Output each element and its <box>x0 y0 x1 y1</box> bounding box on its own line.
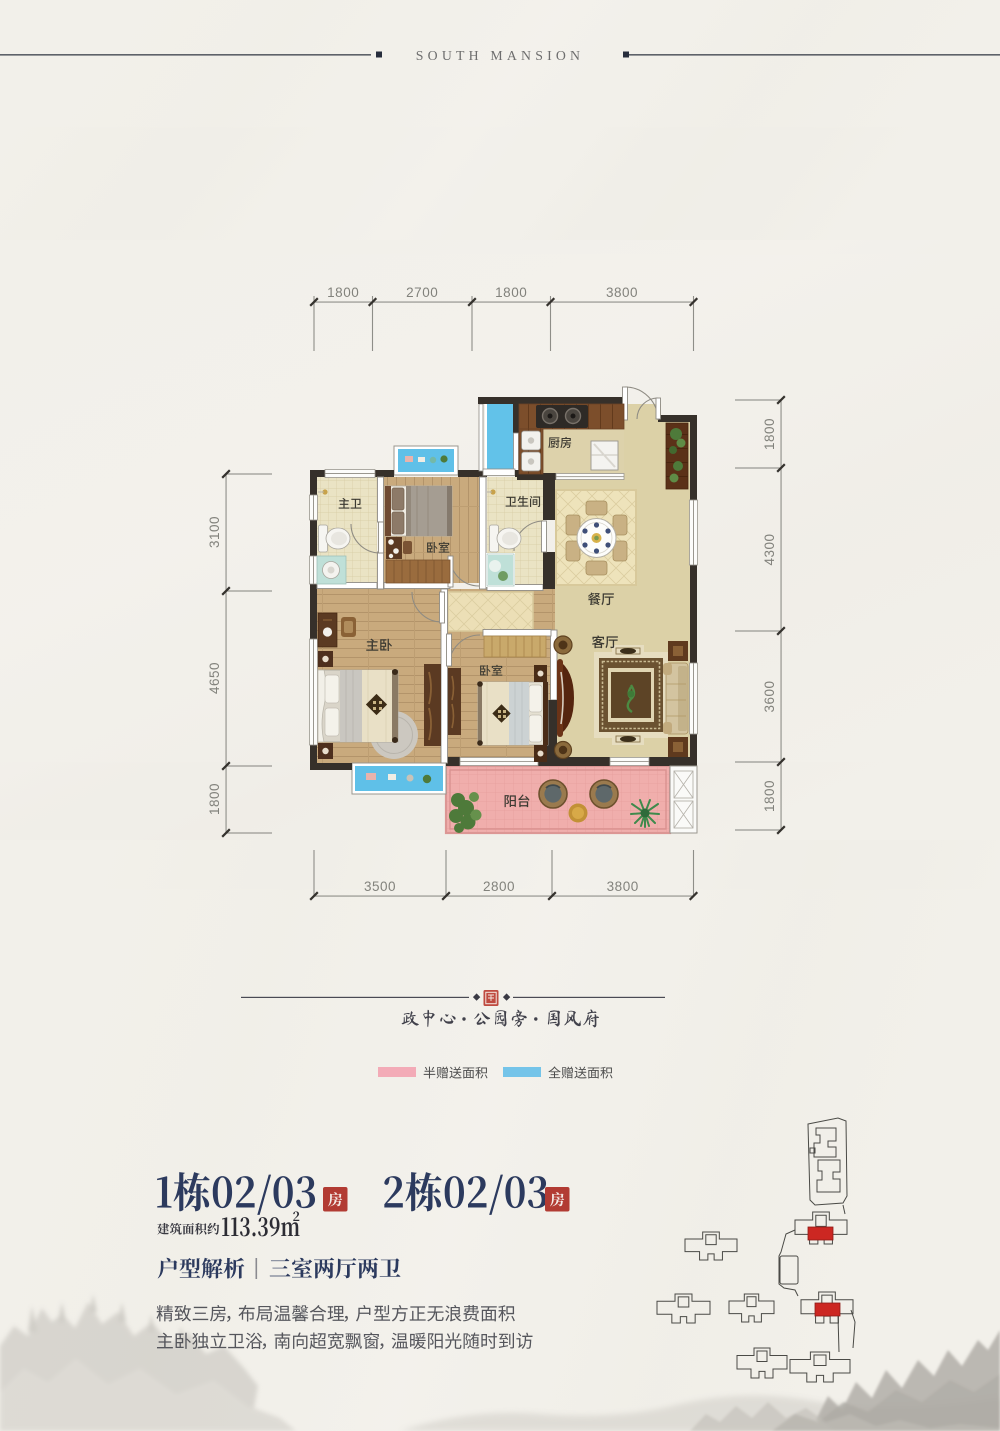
svg-text:3800: 3800 <box>606 285 638 300</box>
svg-text:1800: 1800 <box>762 418 777 450</box>
svg-text:3600: 3600 <box>762 680 777 712</box>
svg-text:1800: 1800 <box>762 780 777 812</box>
svg-text:1800: 1800 <box>207 783 222 815</box>
svg-text:1800: 1800 <box>327 285 359 300</box>
svg-text:1800: 1800 <box>495 285 527 300</box>
svg-text:SOUTH MANSION: SOUTH MANSION <box>416 48 584 63</box>
svg-text:3800: 3800 <box>607 879 639 894</box>
svg-text:4650: 4650 <box>207 662 222 694</box>
svg-text:3500: 3500 <box>364 879 396 894</box>
svg-text:4300: 4300 <box>762 533 777 565</box>
svg-text:2700: 2700 <box>406 285 438 300</box>
svg-text:2800: 2800 <box>483 879 515 894</box>
svg-text:3100: 3100 <box>207 516 222 548</box>
